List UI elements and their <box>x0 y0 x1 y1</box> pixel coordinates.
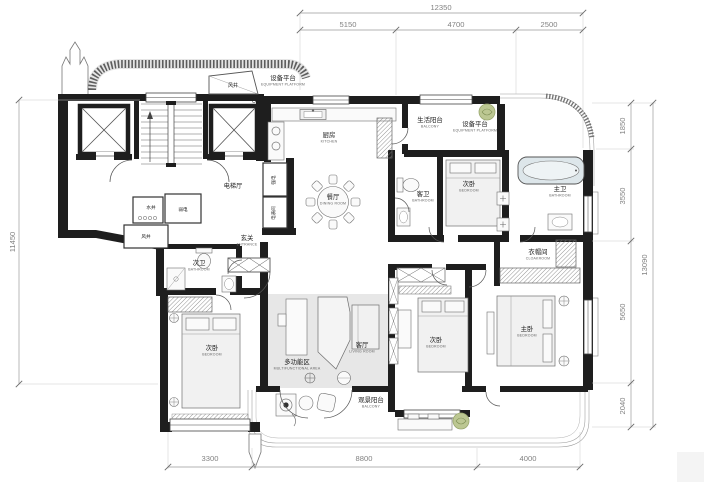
room-label-equipment-platform-top: 设备平台EQUIPMENT PLATFORM <box>261 73 305 87</box>
plant-icon <box>479 104 495 120</box>
utility-label-wind-shaft-mid: 风井 <box>141 233 151 240</box>
dim-right-seg-3: 2040 <box>618 398 627 415</box>
room-label-entrance: 玄关ENTRANCE <box>237 233 258 247</box>
utility-label-wind-shaft-top: 风井 <box>228 82 238 89</box>
room-label-master-bathroom: 主卫BATHROOM <box>549 184 571 198</box>
window-master-bedroom <box>584 300 592 354</box>
window-balcony-top <box>420 95 472 104</box>
dim-top-seg-1: 4700 <box>448 20 465 29</box>
turret-bottom <box>249 434 261 468</box>
utility-label-water-shaft: 水井 <box>146 204 156 211</box>
bay-window-bedroom-bl <box>170 414 250 431</box>
dim-bottom-seg-1: 8800 <box>356 454 373 463</box>
dining-chair <box>329 175 337 184</box>
floor-plan-drawing: 设备平台EQUIPMENT PLATFORM厨房KITCHEN餐厅DINING … <box>0 0 704 482</box>
dim-right-total: 13090 <box>640 254 649 275</box>
window-stairs <box>146 93 196 102</box>
window-kitchen <box>313 96 349 104</box>
utility-label-meter-room: 电表间 <box>270 206 277 220</box>
dim-right-seg-1: 3550 <box>618 188 627 205</box>
master-bathroom-fixtures <box>497 157 584 231</box>
plant-icon <box>453 413 469 429</box>
dining-chair <box>343 212 355 224</box>
balcony-chair <box>316 393 336 413</box>
kitchen-tall-cabinet <box>377 118 392 158</box>
turret-top-left <box>62 42 88 96</box>
dining-chair <box>343 180 355 192</box>
room-label-guest-bathroom: 客卫BATHROOM <box>412 189 434 203</box>
utility-label-strong-electric-room: 强电 <box>270 175 277 185</box>
dining-chair <box>329 220 337 229</box>
window-master-bath <box>584 196 592 232</box>
utility-label-weak-electric-room: 弱电 <box>178 206 188 213</box>
room-label-kitchen: 厨房KITCHEN <box>321 130 338 144</box>
water-shaft-box <box>133 197 163 223</box>
bed-top-right <box>446 160 500 226</box>
room-label-cloakroom: 衣帽间CLOAKROOM <box>526 247 551 261</box>
dining-chair <box>351 198 360 206</box>
dining-chair <box>311 180 323 192</box>
tv-wall-cabinets <box>389 278 398 364</box>
dim-right-seg-0: 1850 <box>618 118 627 135</box>
dim-top-total: 12350 <box>430 3 451 12</box>
balcony-bench <box>398 419 452 430</box>
room-label-living-balcony: 生活阳台BALCONY <box>417 115 443 129</box>
room-label-view-balcony: 观景阳台BALCONY <box>358 395 384 409</box>
watermark-block <box>677 452 704 482</box>
dim-right-seg-2: 5650 <box>618 304 627 321</box>
bedroom-bc-furniture <box>397 268 468 372</box>
dining-chair <box>306 198 315 206</box>
utility-label-elevator-hall: 电梯厅 <box>224 182 243 190</box>
entrance-cabinet <box>228 258 270 272</box>
dim-top-seg-0: 5150 <box>340 20 357 29</box>
dim-left-total: 11450 <box>8 232 17 253</box>
floor-plan-page: 设备平台EQUIPMENT PLATFORM厨房KITCHEN餐厅DINING … <box>0 0 704 482</box>
balcony-table <box>299 396 313 410</box>
dim-bottom-seg-2: 4000 <box>520 454 537 463</box>
stove-counter <box>268 122 284 160</box>
room-label-equipment-platform-right: 设备平台EQUIPMENT PLATFORM <box>453 119 497 133</box>
cloakroom-wardrobe <box>500 268 580 283</box>
cloakroom-wardrobe-2 <box>556 240 576 267</box>
dim-top-seg-2: 2500 <box>541 20 558 29</box>
dining-chair <box>311 212 323 224</box>
dim-bottom-seg-0: 3300 <box>202 454 219 463</box>
